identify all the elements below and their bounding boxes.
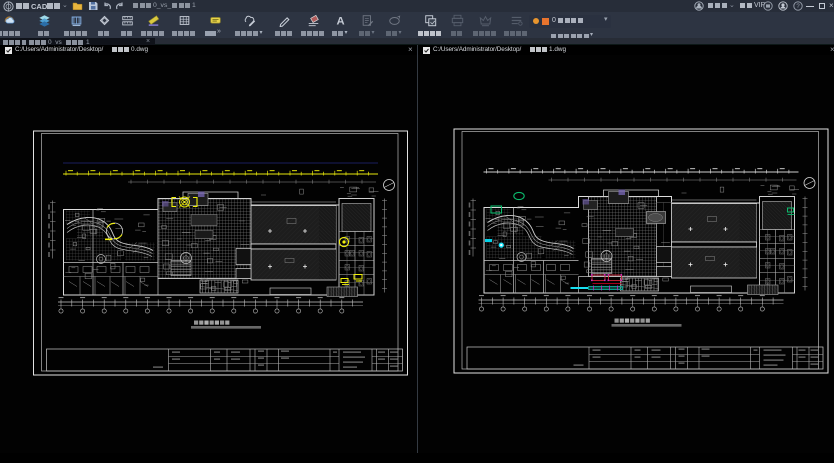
svg-text:A: A	[336, 15, 344, 27]
svg-text:?: ?	[796, 4, 800, 10]
